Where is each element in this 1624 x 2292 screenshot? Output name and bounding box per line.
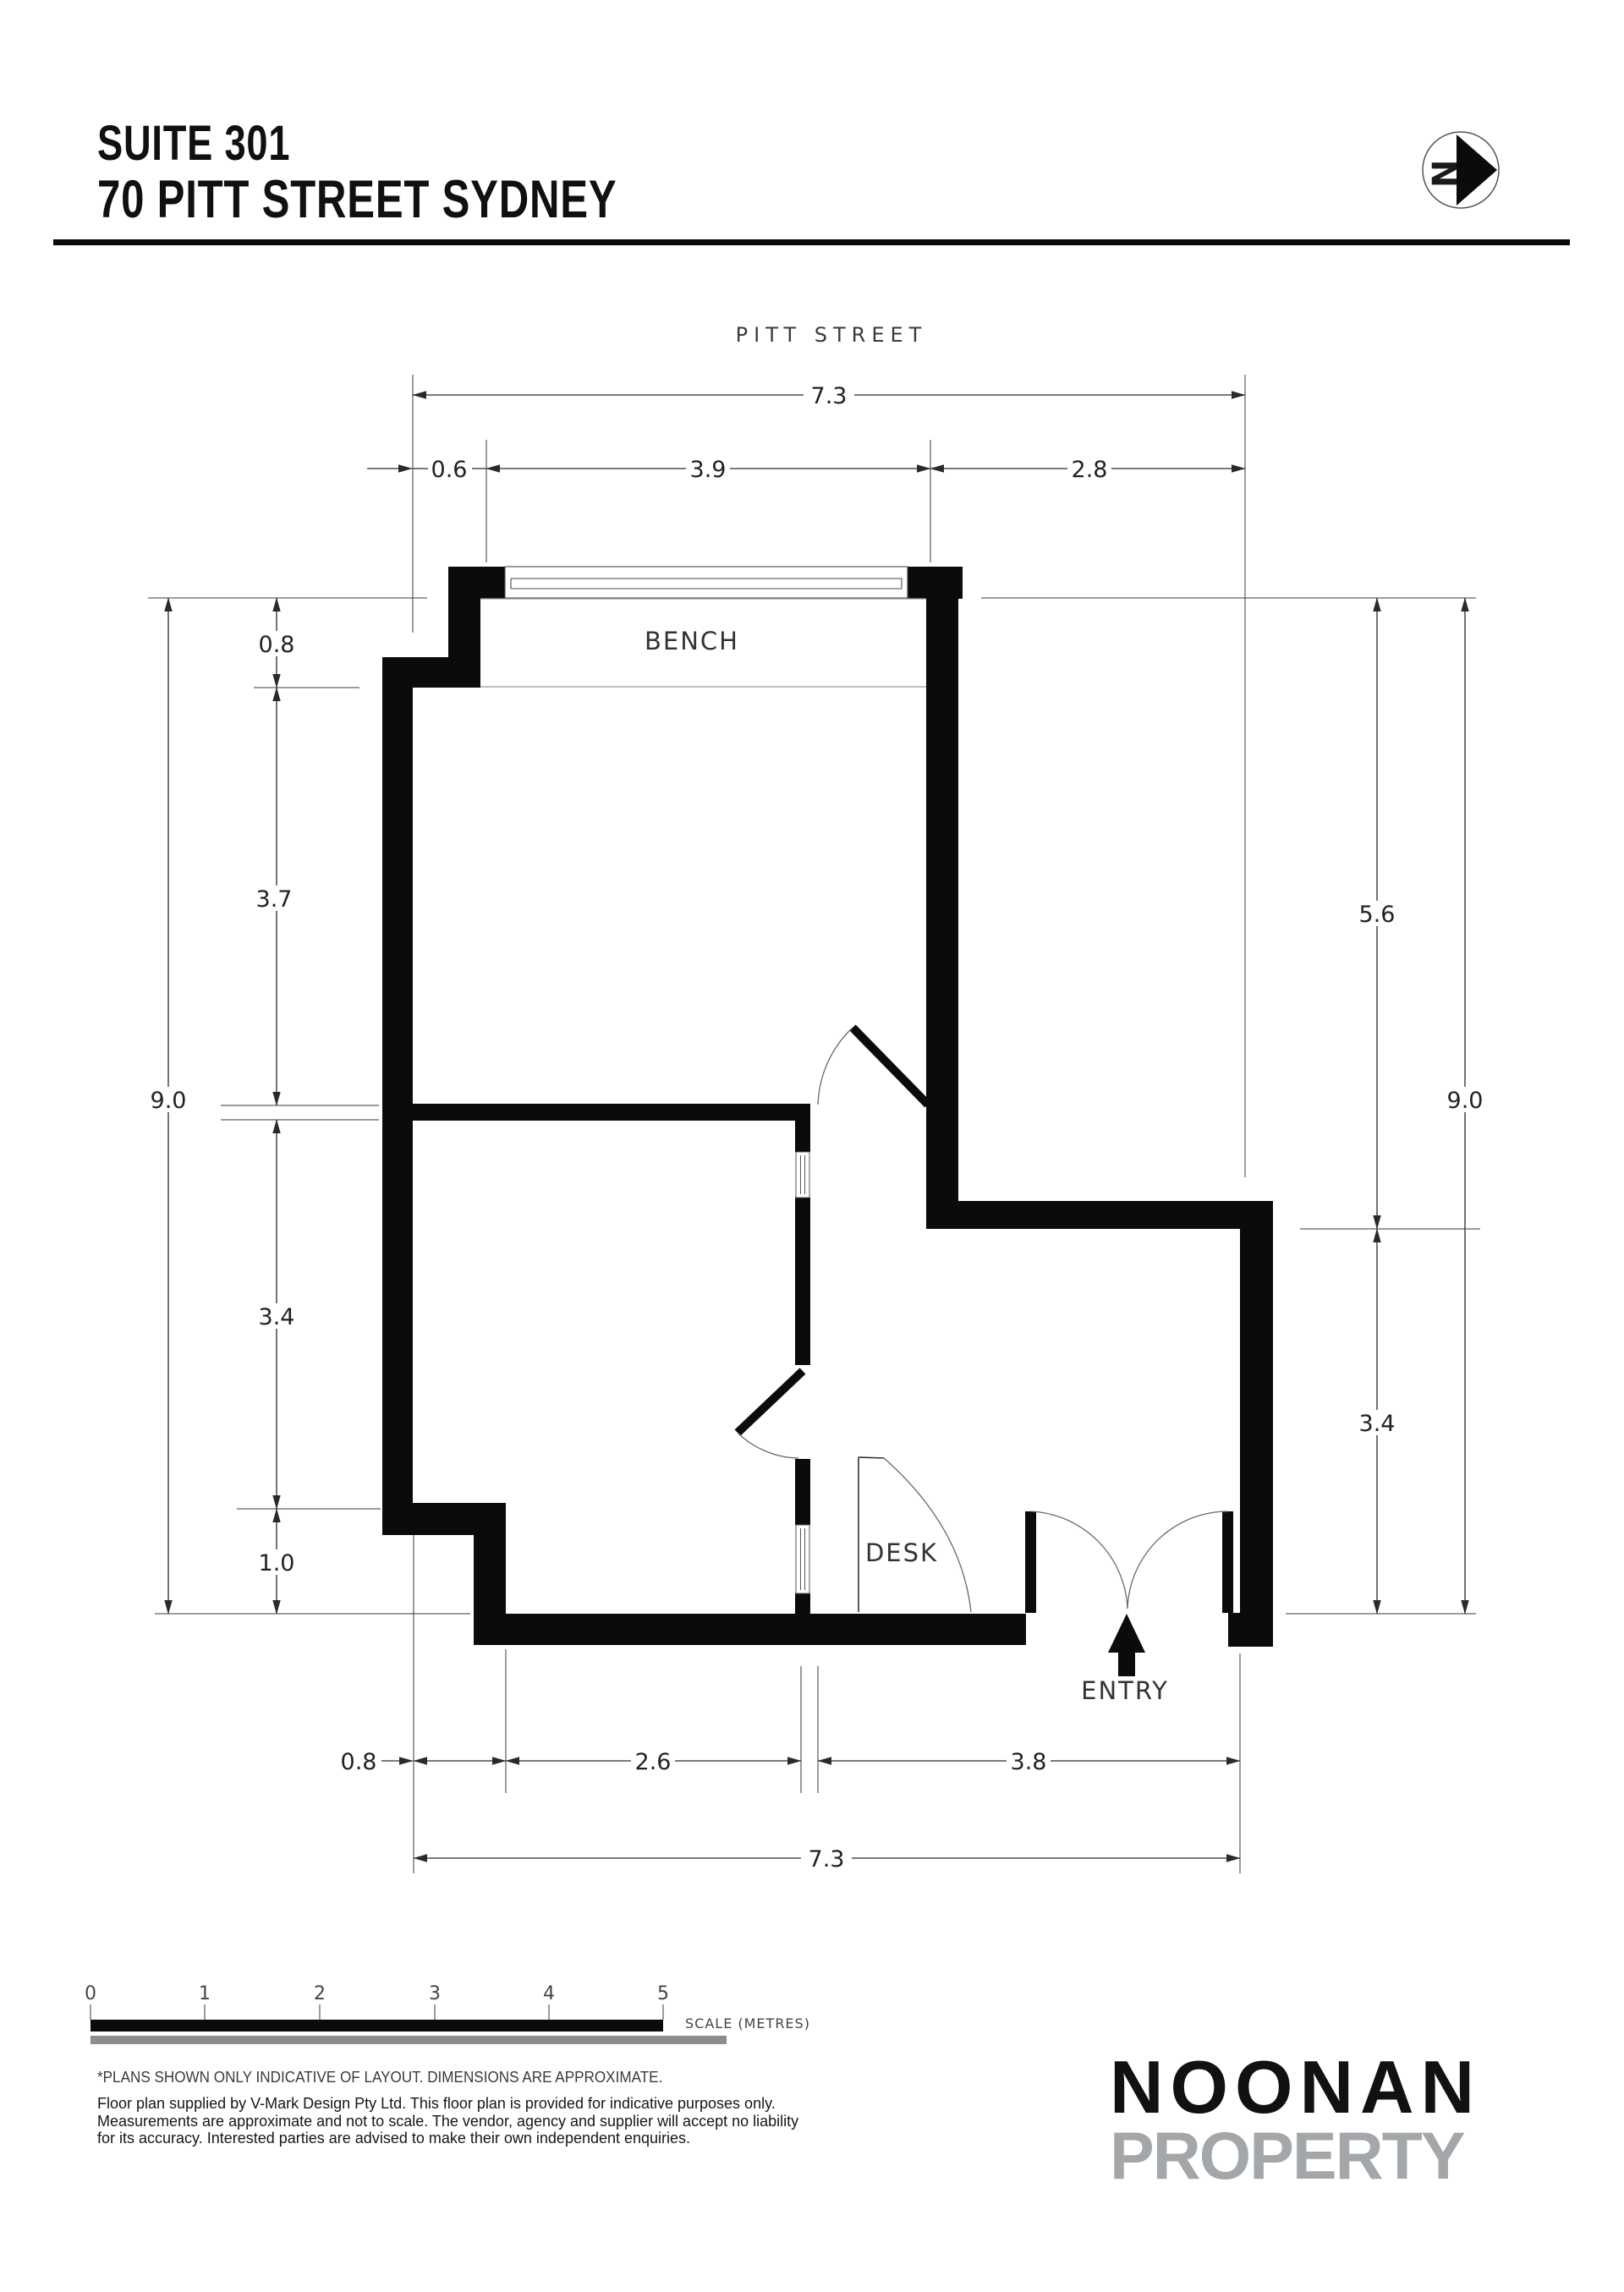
disclaimer-body-line: Measurements are approximate and not to … — [97, 2113, 798, 2130]
wall-bottom-right-block — [1228, 1613, 1273, 1647]
wall-interior-seg1 — [795, 1121, 810, 1152]
dim-bottom-overall: 7.3 — [809, 1846, 845, 1873]
door-swing-arc-interior — [738, 1433, 798, 1458]
scale-tick-4: 4 — [543, 1983, 555, 2004]
dim-left-overall: 9.0 — [151, 1088, 187, 1114]
glazed-panel-upper — [796, 1152, 809, 1198]
logo-name: NOONAN — [1110, 2050, 1481, 2125]
disclaimer-body-line: Floor plan supplied by V-Mark Design Pty… — [97, 2095, 798, 2113]
scale-tick-1: 1 — [199, 1983, 211, 2004]
wall-left-bottom-jog — [382, 1503, 506, 1535]
wall-interior-seg3 — [795, 1459, 810, 1525]
wall-bottom — [474, 1614, 1026, 1645]
street-label: PITT STREET — [736, 323, 928, 347]
scale-tick-2: 2 — [314, 1983, 326, 2004]
wall-interior-seg4 — [795, 1593, 810, 1614]
glazed-panel-lower — [796, 1525, 809, 1593]
walls — [382, 567, 1273, 1647]
dim-left-seg-3: 1.0 — [259, 1550, 295, 1576]
entry-door-arc-left — [1030, 1511, 1127, 1609]
dim-bottom-seg-1: 2.6 — [635, 1749, 672, 1775]
entry-door-leaf-left — [1025, 1511, 1036, 1613]
wall-right — [1240, 1226, 1273, 1647]
disclaimer-body-line: for its accuracy. Interested parties are… — [97, 2130, 798, 2147]
entry-door-leaf-right — [1222, 1511, 1233, 1613]
dim-right-seg-1: 3.4 — [1359, 1411, 1396, 1437]
wall-top-right-block — [908, 567, 963, 599]
dimension-labels: 7.3 0.6 3.9 2.8 0.8 3.7 9.0 3.4 1.0 5.6 … — [146, 382, 1487, 1873]
entry-door-arc-right — [1127, 1511, 1228, 1609]
disclaimer-body: Floor plan supplied by V-Mark Design Pty… — [97, 2095, 798, 2147]
dim-top-overall: 7.3 — [811, 383, 848, 409]
scale-tick-3: 3 — [429, 1983, 441, 2004]
door-swing-arc-desk — [884, 1458, 971, 1612]
dim-left-seg-2: 3.4 — [259, 1304, 295, 1330]
dim-right-overall: 9.0 — [1447, 1088, 1484, 1114]
wall-partition — [413, 1104, 810, 1121]
door-leaf-upper — [853, 1028, 928, 1105]
wall-upper-left — [448, 599, 480, 658]
desk-label: DESK — [865, 1538, 938, 1567]
disclaimer-headline: *PLANS SHOWN ONLY INDICATIVE OF LAYOUT. … — [97, 2069, 662, 2086]
extension-lines — [148, 375, 1480, 1873]
wall-top-left-block — [448, 567, 505, 599]
door-leaf-interior — [738, 1371, 803, 1433]
window — [505, 567, 908, 598]
wall-left-main — [382, 685, 413, 1535]
wall-left-jog — [382, 657, 480, 688]
bench-label: BENCH — [645, 627, 739, 655]
wall-interior-seg2 — [795, 1198, 810, 1365]
doors — [738, 1028, 1233, 1613]
scale-bar-gray — [91, 2036, 727, 2044]
dim-bottom-seg-0: 0.8 — [341, 1749, 377, 1775]
floor-plan-drawing: N PITT STREET — [0, 0, 1624, 2292]
entry-label: ENTRY — [1081, 1676, 1169, 1705]
north-letter: N — [1426, 160, 1465, 188]
floor-plan-page: SUITE 301 70 PITT STREET SYDNEY N PITT S… — [0, 0, 1624, 2292]
scale-tick-5: 5 — [657, 1983, 669, 2004]
wall-hallway — [926, 1201, 1273, 1229]
scale-bar-label: SCALE (METRES) — [685, 2015, 810, 2032]
dim-left-seg-0: 0.8 — [259, 632, 295, 658]
entry-arrow — [1108, 1614, 1145, 1676]
dim-right-seg-0: 5.6 — [1359, 902, 1396, 928]
agency-logo: NOONAN PROPERTY — [1110, 2050, 1481, 2189]
door-swing-arc-upper — [818, 1028, 853, 1105]
logo-type: PROPERTY — [1110, 2122, 1481, 2189]
dim-left-seg-1: 3.7 — [256, 886, 293, 913]
north-arrow-icon: N — [1423, 132, 1499, 208]
dim-top-seg-2: 2.8 — [1072, 457, 1108, 483]
scale-bar: 0 1 2 3 4 5 SCALE (METRES) — [85, 1983, 810, 2044]
wall-upper-right — [926, 597, 958, 1201]
scale-bar-black — [91, 2020, 663, 2032]
scale-tick-0: 0 — [85, 1983, 96, 2004]
dim-top-seg-1: 3.9 — [690, 457, 727, 483]
dim-bottom-seg-2: 3.8 — [1011, 1749, 1047, 1775]
wall-lower-left — [474, 1533, 506, 1615]
dim-top-seg-0: 0.6 — [431, 457, 468, 483]
